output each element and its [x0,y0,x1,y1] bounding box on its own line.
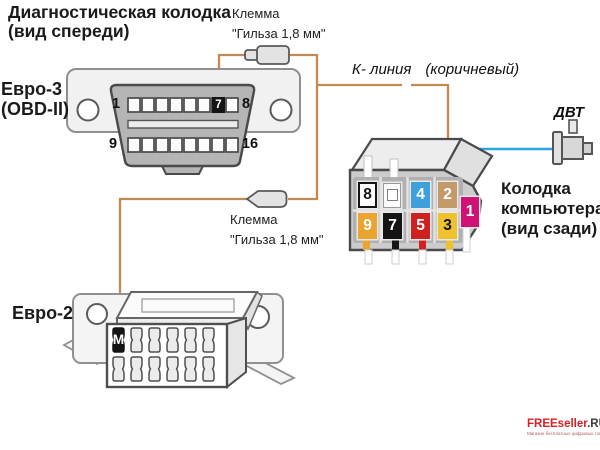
watermark-brand-red: FREEseller [527,418,587,430]
obd2-connector [67,69,300,174]
dvt-label: ДВТ [554,104,584,121]
computer-pin-3: 3 [438,213,457,239]
k-line-color-note: (коричневый) [425,61,519,78]
euro3-obd2-label: Евро-3 (OBD-II) [1,80,69,119]
euro2-label: Евро-2 [12,303,73,324]
obd-mount-hole-left [78,100,99,121]
terminal-bottom-label: Клемма "Гильза 1,8 мм" [230,210,324,249]
k-line-name: К- линия [352,61,411,78]
watermark: FREEseller.RU Магазин бесплатных цифровы… [527,418,597,436]
computer-pin-2: 2 [438,182,457,208]
terminal-top-label-line1: Клемма [232,4,326,24]
euro2-pinM-label: M [111,329,126,350]
terminal-bottom-label-line1: Клемма [230,210,324,230]
computer-label-line3: (вид сзади) [501,219,600,239]
computer-label-line2: компьютера [501,199,600,219]
terminal-bottom-label-line2: "Гильза 1,8 мм" [230,230,324,250]
terminal-top-label: Клемма "Гильза 1,8 мм" [232,4,326,43]
computer-connector-label: Колодка компьютера (вид сзади) [501,179,600,239]
wiring-diagram-canvas: Диагностическая колодка (вид спереди) Кл… [0,0,600,450]
sleeve-terminal-bottom [247,191,287,207]
computer-pin-8: 8 [358,182,377,208]
obd-pin16-label: 16 [239,136,261,152]
computer-label-line1: Колодка [501,179,600,199]
diagram-title-line1: Диагностическая колодка [8,2,231,23]
diagram-title-line2: (вид спереди) [8,21,129,42]
euro3-label-line1: Евро-3 [1,80,69,100]
sleeve-terminal-top [245,46,289,64]
obd-mount-hole-right [271,100,292,121]
computer-pin-9: 9 [358,213,377,239]
watermark-tagline: Магазин бесплатных цифровых товаров [527,431,597,436]
obd-pin8-label: 8 [240,96,252,112]
computer-pin-7: 7 [383,213,402,239]
euro2-mount-hole-left [87,304,107,324]
computer-pin-blank [383,183,401,208]
dvt-sensor [553,120,592,164]
computer-pin-1: 1 [461,197,479,227]
watermark-brand-dark: .RU [587,418,600,430]
euro2-connector [64,292,294,387]
k-line-label: К- линия(коричневый) [352,61,519,78]
euro3-label-line2: (OBD-II) [1,100,69,120]
computer-pin-5: 5 [411,213,430,239]
terminal-top-label-line2: "Гильза 1,8 мм" [232,24,326,44]
obd-pin1-label: 1 [110,96,122,112]
obd-pin9-label: 9 [106,136,120,152]
computer-pin-4: 4 [411,182,430,208]
watermark-logo: FREEseller.RU [527,418,597,430]
blank-pin-inner-square [387,189,398,201]
obd-pin7-highlighted: 7 [212,97,225,113]
